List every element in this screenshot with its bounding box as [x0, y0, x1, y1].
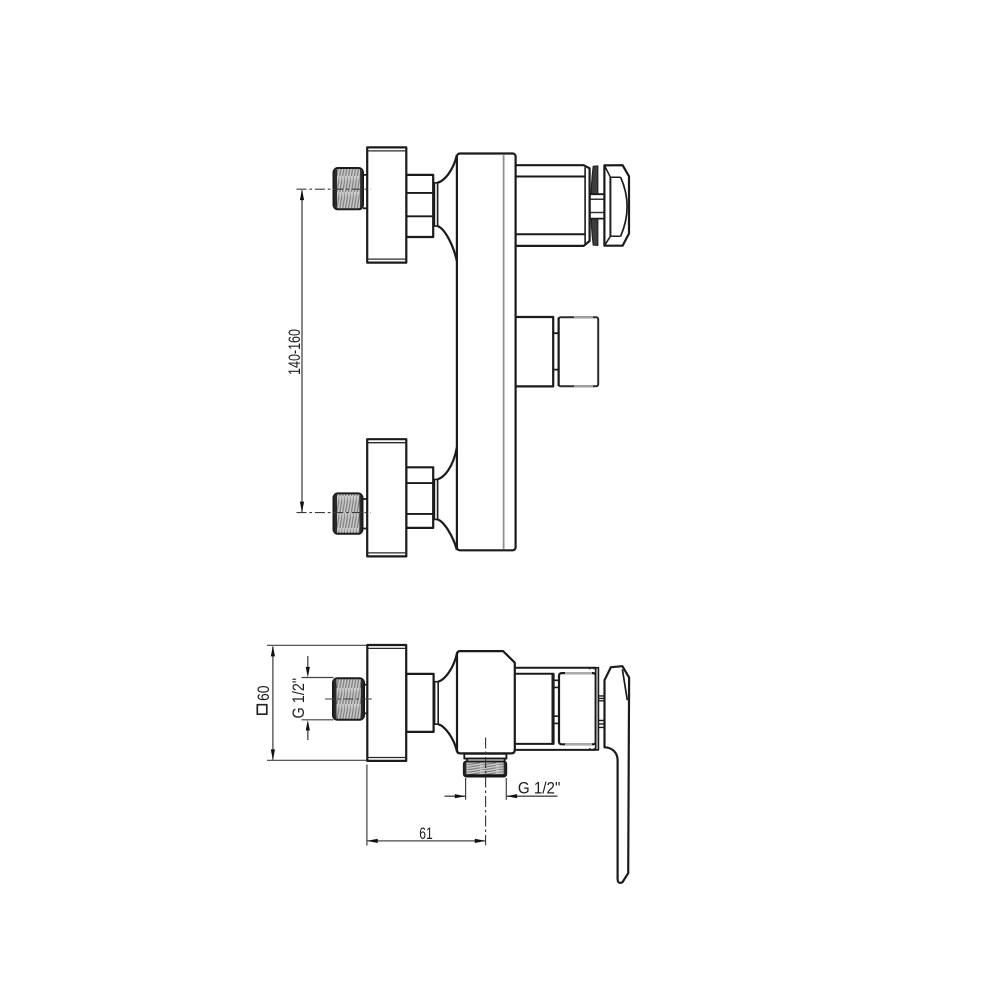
svg-text:140-160: 140-160 [285, 329, 304, 375]
svg-text:G 1/2": G 1/2" [289, 678, 308, 719]
svg-text:61: 61 [419, 824, 433, 843]
svg-text:60: 60 [254, 686, 273, 702]
svg-text:G 1/2": G 1/2" [518, 778, 561, 797]
